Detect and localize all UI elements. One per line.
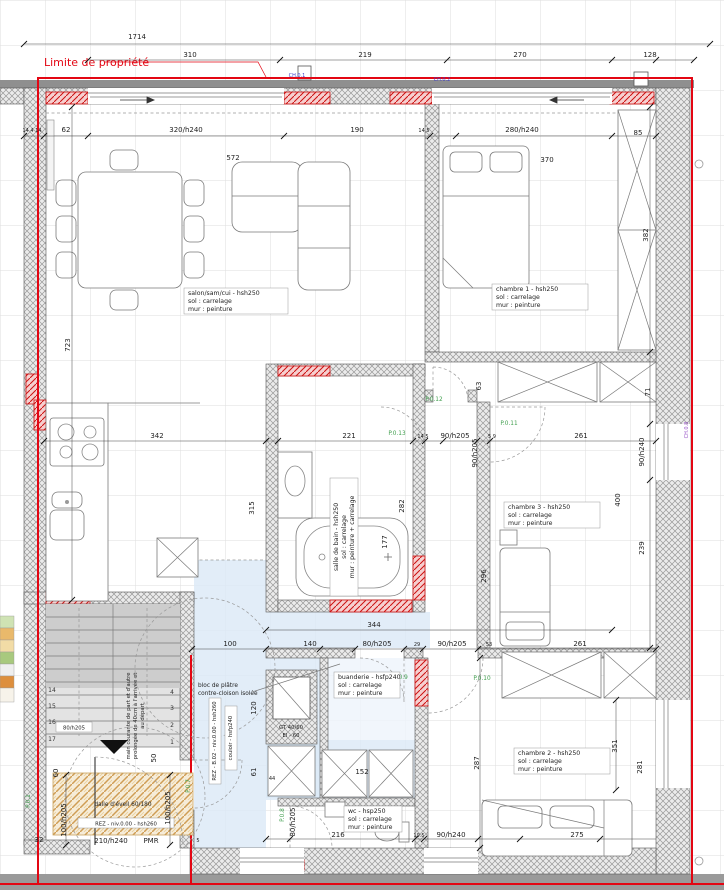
- window-code-right: CH.0.8: [684, 422, 690, 439]
- door-label-p010: P.0.10: [473, 676, 491, 682]
- sdb-label-3: mur : peinture + carrelage: [349, 495, 356, 578]
- chambre1-label-1: chambre 1 - hsh250: [496, 286, 558, 293]
- chambre2-label-1: chambre 2 - hsh250: [518, 750, 580, 757]
- window-chambre1: [432, 88, 612, 104]
- dim: 90/h205: [440, 432, 469, 440]
- dim: 342: [150, 432, 163, 440]
- dim: 275: [570, 831, 583, 839]
- dim: 315: [248, 501, 256, 514]
- chambre1-label-2: sol : carrelage: [496, 294, 540, 301]
- dim: 239: [638, 541, 646, 554]
- wc-label-1: wc - hsp250: [348, 808, 386, 815]
- chambre2-label-2: sol : carrelage: [518, 758, 562, 765]
- svg-text:au départ: au départ: [139, 703, 146, 729]
- door-label-p07: P.0.7: [186, 779, 192, 793]
- dim: 216: [331, 831, 345, 839]
- wc-label-2: sol : carrelage: [348, 816, 392, 823]
- dim: 60: [52, 769, 60, 778]
- gt-label-2: EI - 60: [283, 733, 301, 739]
- staircase: 14 15 16 17 4 3 2 1 80/h205 main courant…: [46, 604, 180, 759]
- step-number: 17: [48, 736, 56, 743]
- dim: 723: [64, 338, 72, 351]
- entry-door-dim: 210/h240: [94, 837, 128, 845]
- door-label-p013: P.0.13: [388, 431, 406, 437]
- window-bottom-left: [240, 848, 304, 874]
- facade-strip-top: [0, 80, 694, 88]
- step-number: 16: [48, 719, 56, 726]
- tactile-slab-label: dalle d'éveil 60/180: [94, 801, 151, 808]
- floor-plan: GT 40/60 EI - 60 14 15 16 17 4 3 2 1 80/…: [0, 0, 724, 890]
- dim: 370: [540, 156, 553, 164]
- floor-plan-svg: GT 40/60 EI - 60 14 15 16 17 4 3 2 1 80/…: [0, 0, 724, 890]
- dim: 100: [223, 640, 236, 648]
- dim: 128: [643, 51, 656, 59]
- entry-level-label: REZ - niv.0.00 - hsh260: [95, 822, 157, 828]
- hall-closet: [268, 746, 315, 796]
- dim: 5: [196, 838, 199, 844]
- dim: 190: [350, 126, 363, 134]
- chambre2-label-3: mur : peinture: [518, 766, 563, 773]
- buanderie-label-1: buanderie - hsfp240: [338, 674, 401, 681]
- sdb-label-1: salle de bain - hsh250: [333, 503, 340, 571]
- understair-door-dim: 80/h205: [63, 726, 85, 732]
- buanderie-label-2: sol : carrelage: [338, 682, 382, 689]
- sink-basin: [50, 510, 84, 540]
- dim: 29: [414, 642, 420, 648]
- dim: 152: [355, 768, 368, 776]
- step-number: 4: [170, 689, 174, 696]
- hand-basin: [325, 802, 345, 817]
- step-number: 1: [170, 739, 174, 746]
- dim: 296: [480, 569, 488, 583]
- salon-label-1: salon/sam/cui - hsh250: [188, 290, 260, 297]
- dim: 1714: [128, 33, 146, 41]
- dim: 382: [642, 228, 650, 241]
- dim: 14 4 14: [22, 128, 41, 134]
- door-label-p011: P.0.11: [500, 421, 518, 427]
- dim: 261: [573, 640, 586, 648]
- svg-text:main courante de part et d'aut: main courante de part et d'autre: [126, 673, 132, 760]
- buanderie-label-3: mur : peinture: [338, 690, 383, 697]
- salon-label-3: mur : peinture: [188, 306, 233, 313]
- dim: 310: [183, 51, 196, 59]
- door-label-p08: P.0.8: [280, 808, 286, 822]
- dim: 90/h205: [471, 438, 479, 467]
- property-line-label: Limite de propriété: [44, 56, 149, 69]
- dim: 400: [614, 493, 622, 506]
- dim: 90/h205: [437, 640, 466, 648]
- step-number: 14: [48, 687, 56, 694]
- dim: 351: [611, 739, 619, 752]
- dim: 281: [636, 760, 644, 773]
- dim: 32: [35, 836, 44, 844]
- dim: 100/h205: [164, 791, 172, 825]
- dim: 85: [634, 129, 643, 137]
- dim: 280/h240: [505, 126, 539, 134]
- wardrobe-chambre1: [618, 110, 656, 350]
- cutoff-legend: [0, 616, 14, 702]
- radiator: [47, 120, 54, 190]
- dim: 14 5: [417, 434, 428, 440]
- dim: 44: [269, 776, 275, 782]
- wardrobe-chambre2: [502, 652, 656, 698]
- salon-label-2: sol : carrelage: [188, 298, 232, 305]
- dim: 344: [367, 621, 381, 629]
- dim: 90/h240: [638, 437, 646, 466]
- dim: 61: [250, 768, 258, 777]
- chambre3-label-2: sol : carrelage: [508, 512, 552, 519]
- dim: 50: [150, 754, 158, 763]
- partition-note-2: contre-cloison isolée: [198, 690, 258, 697]
- facade-strip-bottom: [0, 874, 724, 890]
- dim: 221: [342, 432, 355, 440]
- pmr-label: PMR: [143, 837, 158, 845]
- window-salon: [88, 88, 284, 104]
- dim: 261: [574, 432, 587, 440]
- couloir-box-2: couloir - hsfp240: [228, 715, 234, 760]
- wc-label-3: mur : peinture: [348, 824, 393, 831]
- svg-text:prolongée de 40cm à l'arrivée: prolongée de 40cm à l'arrivée et: [132, 673, 139, 760]
- window-code-top-right: CH.0.2: [434, 77, 451, 83]
- wardrobe-chambre3: [498, 362, 656, 402]
- nightstand: [500, 530, 517, 545]
- step-number: 2: [170, 722, 174, 729]
- vanity: [278, 452, 312, 518]
- dim: 14 5: [418, 128, 429, 134]
- dim: 62: [62, 126, 71, 134]
- dim: 53: [486, 642, 492, 648]
- dim: 177: [381, 535, 389, 548]
- chambre3-label-1: chambre 3 - hsh250: [508, 504, 570, 511]
- dim: 572: [226, 154, 239, 162]
- dim: 140: [303, 640, 316, 648]
- chambre1-label-3: mur : peinture: [496, 302, 541, 309]
- dim: 63: [475, 382, 483, 391]
- window-wc: [424, 848, 478, 874]
- couloir-box-1: REZ - B.02 - niv.0.00 - hsh260: [212, 701, 218, 781]
- dim: 5 9: [488, 434, 496, 440]
- dim: 219: [358, 51, 371, 59]
- dim: 270: [513, 51, 526, 59]
- fridge-unit: [157, 538, 198, 577]
- partition-note-1: bloc de plâtre: [198, 682, 238, 689]
- dim: 71: [644, 388, 652, 397]
- window-chambre2: [656, 700, 690, 788]
- dim: 282: [398, 499, 406, 512]
- door-label-p01: P.0.1: [26, 794, 32, 808]
- sdb-label-2: sol : carrelage: [341, 515, 348, 559]
- dim: 100/h205: [60, 803, 68, 837]
- dim: 19.5: [413, 833, 424, 839]
- chambre3-label-3: mur : peinture: [508, 520, 553, 527]
- dim: 320/h240: [169, 126, 203, 134]
- step-number: 15: [48, 703, 56, 710]
- door-label-p012: P.0.12: [425, 397, 443, 403]
- dim: 287: [473, 756, 481, 769]
- dim: 80/h205: [362, 640, 391, 648]
- window-code-top-left: CH.0.1: [289, 73, 306, 79]
- dim: 90/h240: [436, 831, 465, 839]
- step-number: 3: [170, 705, 174, 712]
- cooktop: [50, 418, 104, 466]
- gt-label-1: GT 40/60: [279, 725, 304, 731]
- dim: 120: [250, 701, 258, 714]
- dim: 80/h205: [289, 807, 297, 836]
